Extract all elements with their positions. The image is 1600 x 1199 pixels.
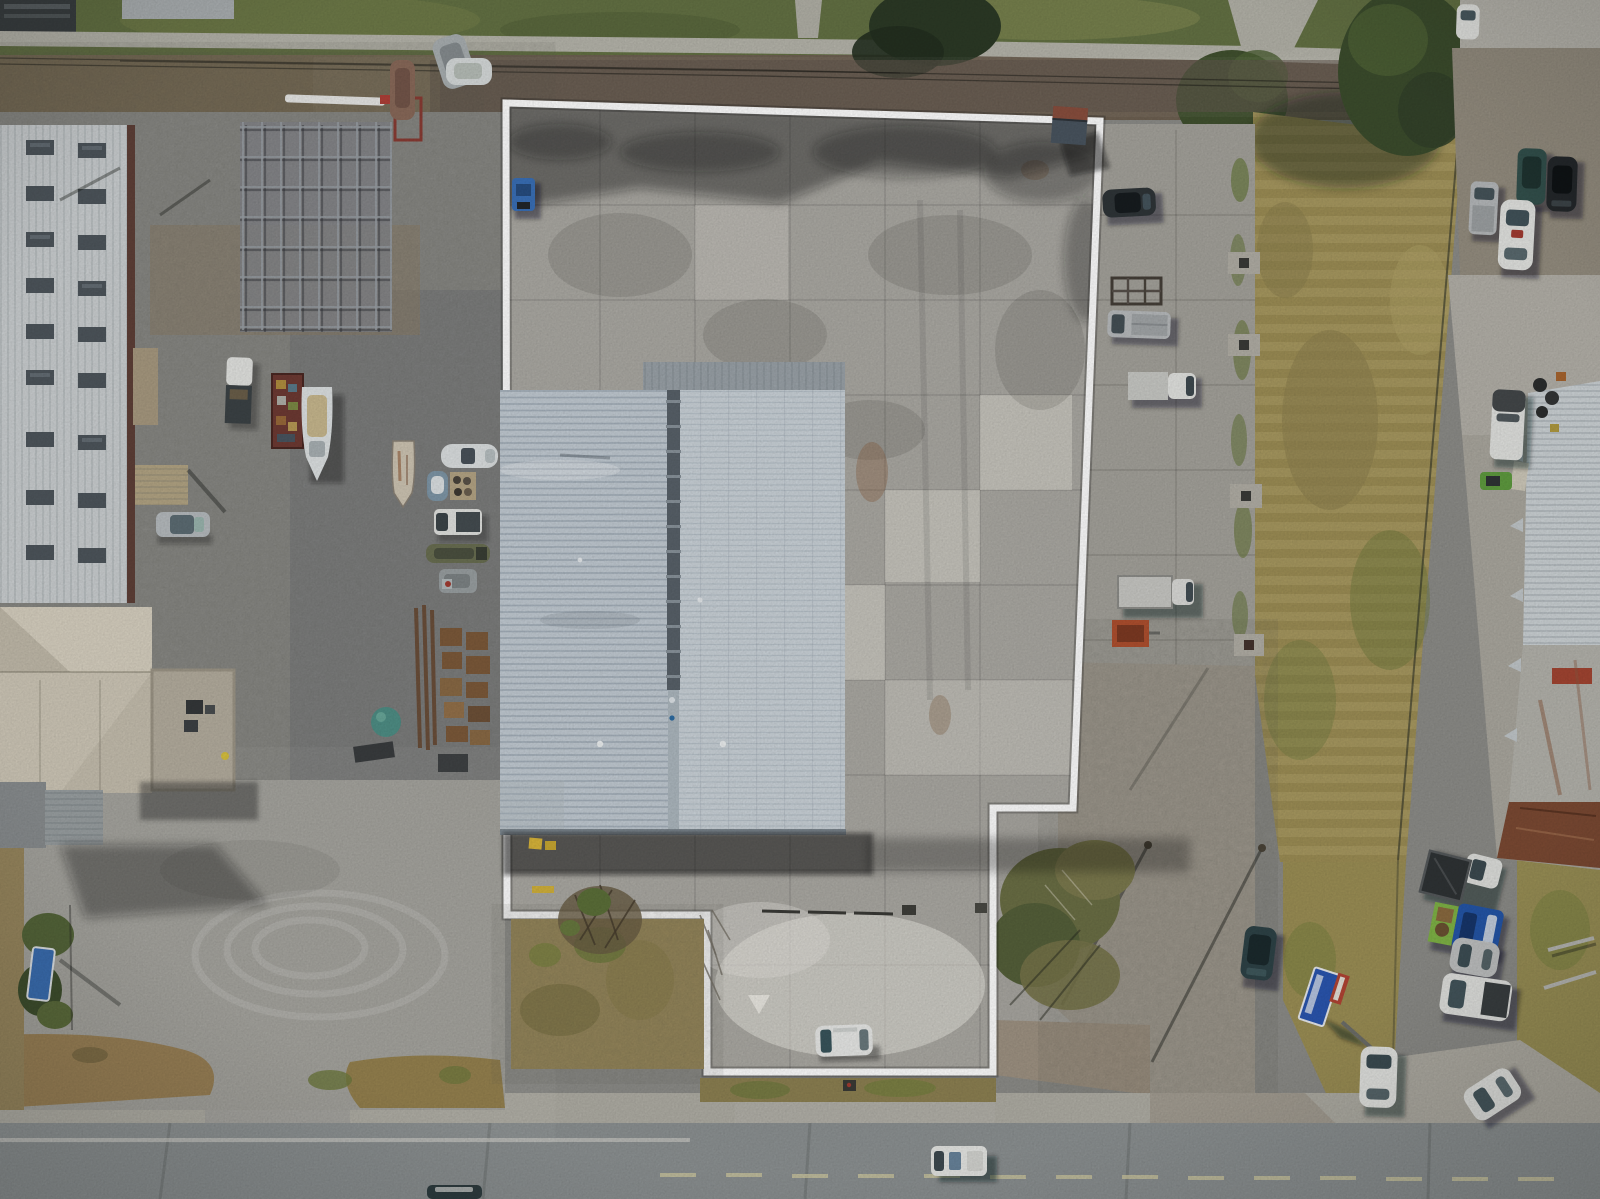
aerial-photo: Aerial drone photograph of outlined comm… xyxy=(0,0,1600,1199)
vignette xyxy=(0,0,1600,1199)
aerial-scene: Aerial drone photograph of outlined comm… xyxy=(0,0,1600,1199)
